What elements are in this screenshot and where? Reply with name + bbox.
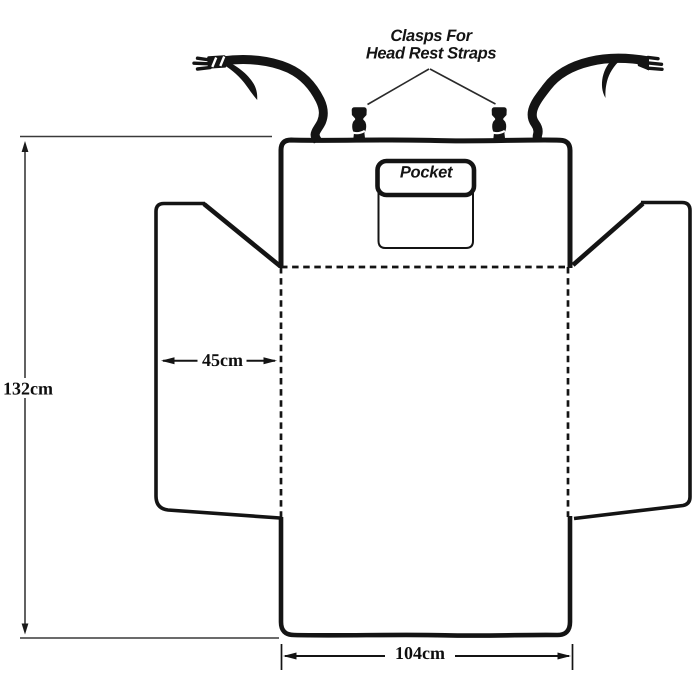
svg-text:132cm: 132cm [3,379,53,399]
svg-text:Head Rest Straps: Head Rest Straps [366,45,496,63]
svg-text:Clasps For: Clasps For [390,27,473,45]
svg-text:Pocket: Pocket [400,164,454,182]
svg-text:45cm: 45cm [202,350,243,370]
svg-text:104cm: 104cm [395,643,445,663]
